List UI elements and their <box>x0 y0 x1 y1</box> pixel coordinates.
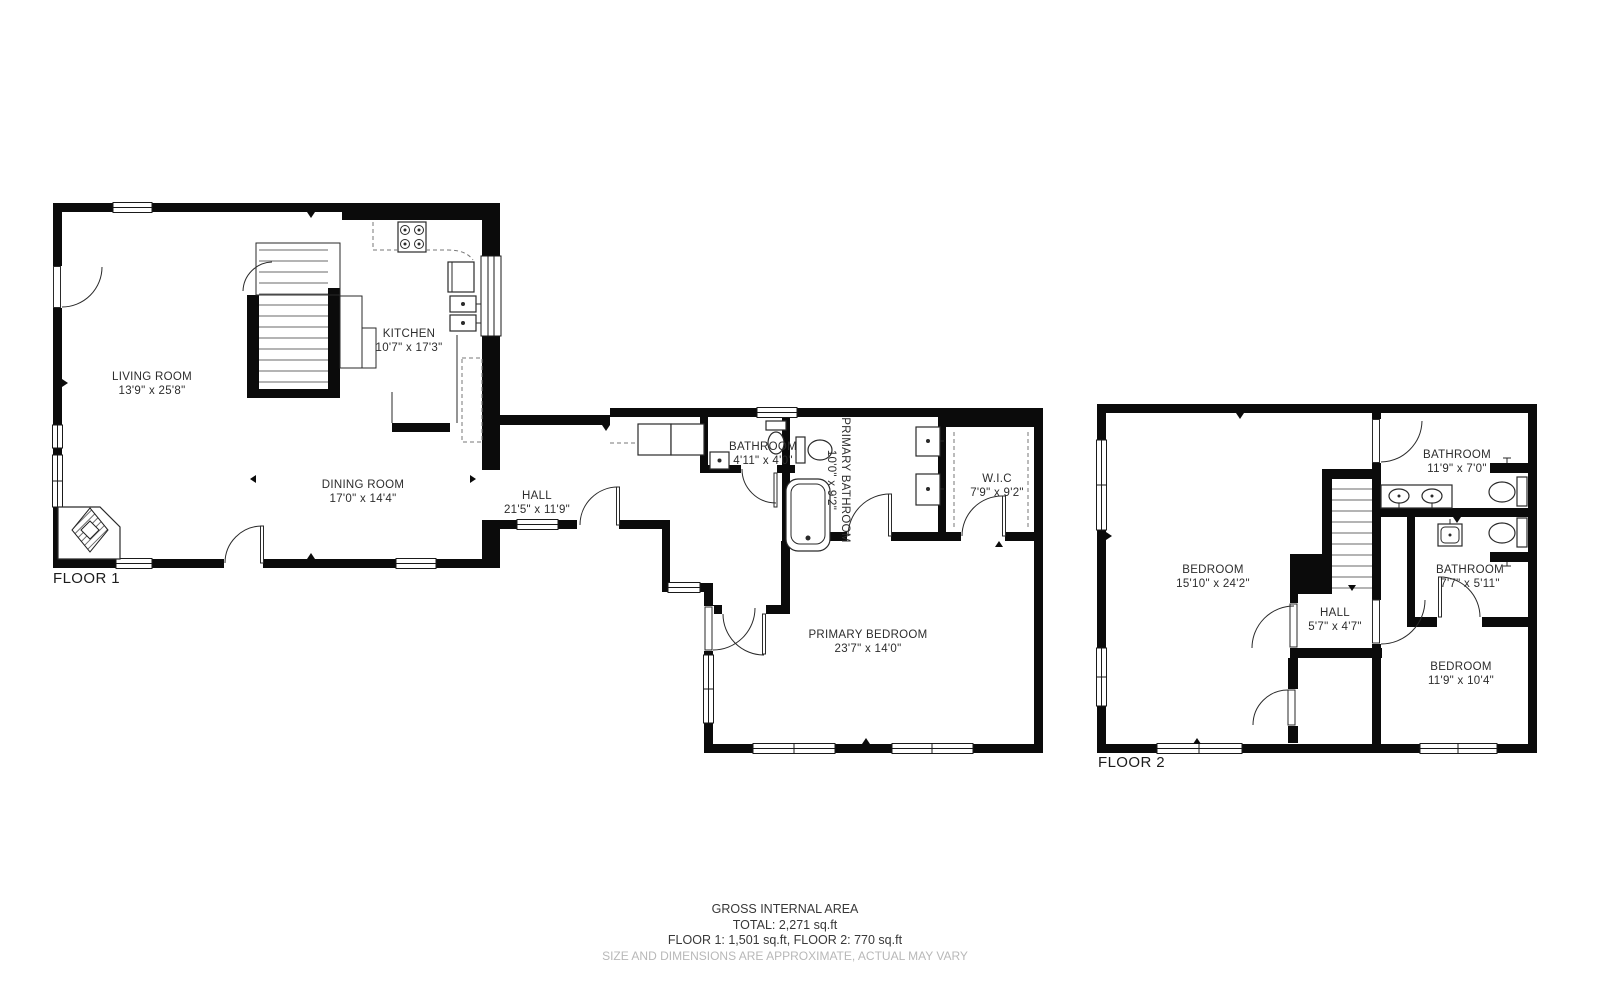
floor-plan-drawing <box>0 0 1600 999</box>
floor1-walls <box>53 203 1043 753</box>
wall-openings <box>52 266 1482 726</box>
room-label-bedroom-bottom: BEDROOM11'9" x 10'4" <box>1428 660 1494 688</box>
total-area: TOTAL: 2,271 sq.ft <box>602 918 968 934</box>
disclaimer: SIZE AND DIMENSIONS ARE APPROXIMATE, ACT… <box>602 949 968 965</box>
toilet-icon <box>1489 523 1515 543</box>
room-label-primary-bedroom: PRIMARY BEDROOM23'7" x 14'0" <box>808 628 927 656</box>
hall-closet <box>610 424 704 455</box>
room-label-primary-bathroom: PRIMARY BATHROOM10'0" x 9'2" <box>824 417 852 543</box>
floor1-title: FLOOR 1 <box>53 570 120 587</box>
room-label-hall-floor1: HALL21'5" x 11'9" <box>504 489 570 517</box>
room-label-wic: W.I.C7'9" x 9'2" <box>970 472 1024 500</box>
room-label-hall-floor2: HALL5'7" x 4'7" <box>1308 606 1362 634</box>
room-label-bathroom-top: BATHROOM11'9" x 7'0" <box>1423 448 1491 476</box>
fireplace-icon <box>58 507 120 559</box>
floor-plan-page: LIVING ROOM13'9" x 25'8" KITCHEN10'7" x … <box>0 0 1600 999</box>
room-label-bathroom-mid: BATHROOM7'7" x 5'11" <box>1436 563 1504 591</box>
floor2-title: FLOOR 2 <box>1098 754 1165 771</box>
toilet-icon <box>766 421 786 430</box>
doors <box>54 267 1481 726</box>
room-label-kitchen: KITCHEN10'7" x 17'3" <box>376 327 443 355</box>
gross-area-title: GROSS INTERNAL AREA <box>602 902 968 918</box>
toilet-icon <box>1489 482 1515 502</box>
floor-areas: FLOOR 1: 1,501 sq.ft, FLOOR 2: 770 sq.ft <box>602 933 968 949</box>
toilet-icon <box>796 437 805 463</box>
staircase-floor1 <box>243 243 376 382</box>
towel-bar-icon <box>1490 552 1528 562</box>
room-label-bedroom-left: BEDROOM15'10" x 24'2" <box>1176 563 1250 591</box>
towel-bar-icon <box>1490 463 1528 473</box>
room-label-dining-room: DINING ROOM17'0" x 14'4" <box>322 478 405 506</box>
area-summary: GROSS INTERNAL AREA TOTAL: 2,271 sq.ft F… <box>602 902 968 964</box>
marker-arrows <box>62 212 1461 744</box>
room-label-living-room: LIVING ROOM13'9" x 25'8" <box>112 370 192 398</box>
staircase-floor2 <box>1332 489 1372 588</box>
room-label-bathroom-floor1: BATHROOM4'11" x 4'0" <box>729 440 797 468</box>
